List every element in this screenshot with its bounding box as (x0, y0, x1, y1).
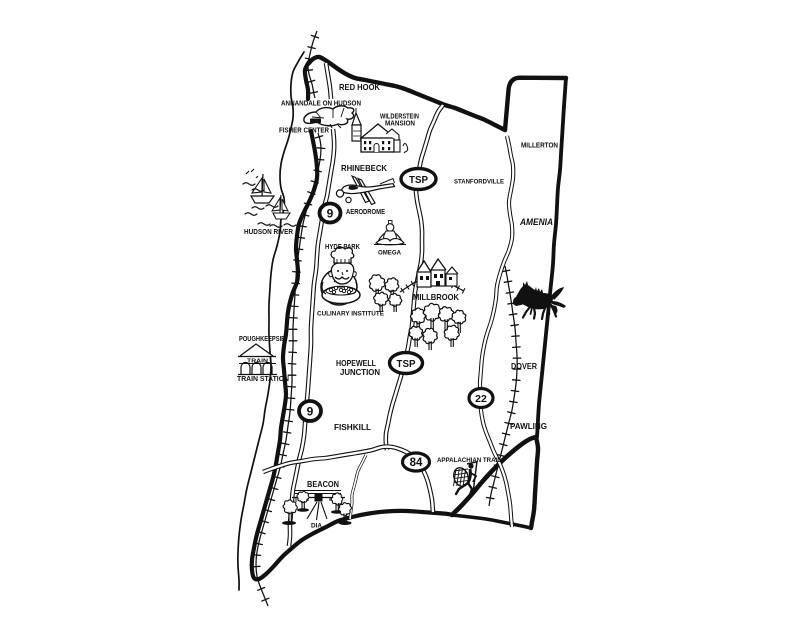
svg-text:APPALACHIAN TRAIL: APPALACHIAN TRAIL (437, 457, 501, 464)
svg-text:POUGHKEEPSIE: POUGHKEEPSIE (239, 336, 285, 343)
svg-text:ANNANDALE ON HUDSON: ANNANDALE ON HUDSON (281, 101, 361, 108)
svg-text:RHINEBECK: RHINEBECK (341, 163, 387, 173)
svg-text:HUDSON RIVER: HUDSON RIVER (244, 229, 293, 236)
svg-text:OMEGA: OMEGA (378, 250, 401, 257)
svg-text:84: 84 (410, 457, 423, 469)
svg-text:DIA: DIA (311, 524, 323, 530)
svg-text:STANFORDVILLE: STANFORDVILLE (454, 179, 504, 186)
svg-text:DOVER: DOVER (511, 362, 537, 371)
svg-text:TSP: TSP (397, 358, 416, 370)
svg-text:FISHKILL: FISHKILL (334, 423, 371, 432)
svg-text:WILDERSTEIN: WILDERSTEIN (380, 114, 419, 121)
svg-text:MANSION: MANSION (385, 121, 415, 128)
svg-text:MILLERTON: MILLERTON (521, 143, 558, 150)
svg-text:JUNCTION: JUNCTION (340, 368, 380, 377)
svg-text:MILLBROOK: MILLBROOK (413, 292, 459, 302)
svg-text:RED HOOK: RED HOOK (339, 82, 381, 92)
svg-text:22: 22 (475, 393, 487, 405)
svg-text:TRAIN STATION: TRAIN STATION (237, 374, 289, 383)
svg-text:PAWLING: PAWLING (510, 421, 547, 431)
svg-text:TSP: TSP (409, 174, 428, 186)
svg-text:HOPEWELL: HOPEWELL (336, 359, 376, 368)
svg-text:9: 9 (327, 206, 334, 220)
svg-text:HYDE PARK: HYDE PARK (325, 244, 360, 251)
svg-text:FISHER CENTER: FISHER CENTER (279, 126, 330, 135)
svg-text:AMENIA: AMENIA (519, 217, 553, 227)
svg-text:CULINARY INSTITUTE: CULINARY INSTITUTE (317, 311, 384, 318)
svg-text:AERODROME: AERODROME (346, 209, 385, 216)
svg-text:9: 9 (307, 404, 314, 418)
svg-text:BEACON: BEACON (307, 479, 339, 489)
